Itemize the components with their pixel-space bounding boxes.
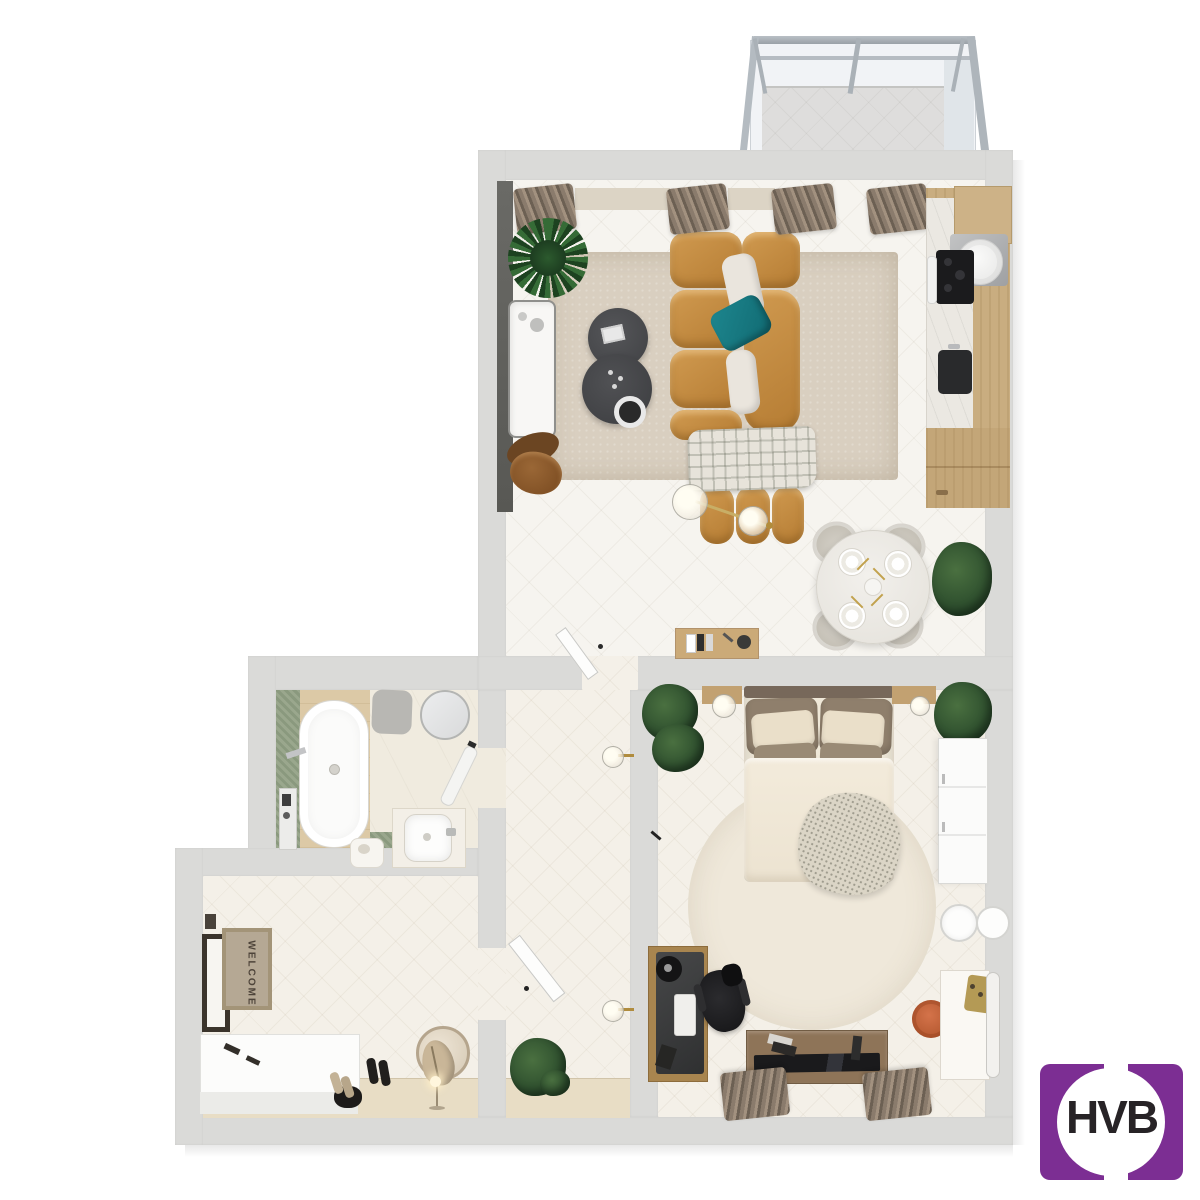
- sideboard-speaker-large: [530, 318, 544, 332]
- makeup-item-1: [970, 984, 975, 989]
- sofa-cushion-bottom-3: [772, 486, 804, 544]
- window-rail: [575, 188, 670, 210]
- cabinet-seam: [926, 466, 1010, 468]
- console-book-3: [706, 634, 713, 651]
- console-book-2: [697, 634, 704, 651]
- table-dot-2: [618, 376, 623, 381]
- building-shadow-bottom: [185, 1145, 1013, 1157]
- light-switch: [205, 914, 216, 929]
- desk-keyboard: [674, 994, 696, 1036]
- wall-bathroom-top: [248, 656, 478, 690]
- bathtub-drain: [329, 764, 340, 775]
- shower-control-2: [283, 812, 290, 819]
- bathroom-sink-faucet: [446, 828, 456, 836]
- curtain-bedroom-left: [720, 1067, 791, 1122]
- living-door-handle: [598, 644, 603, 649]
- wall-sconce-2: [976, 906, 1010, 940]
- pendant-globe-1: [672, 484, 708, 520]
- console-book-1: [686, 634, 696, 653]
- bed-lamp-right: [910, 696, 930, 716]
- bathroom-mirror: [420, 690, 470, 740]
- welcome-mat-label: WELCOME: [246, 933, 257, 1015]
- table-cup: [614, 396, 646, 428]
- wall-sconce-1: [940, 904, 978, 942]
- floor-lamp-base: [429, 1106, 445, 1110]
- sink-drain: [423, 833, 431, 841]
- wardrobe-seam-1: [938, 786, 986, 788]
- cooktop-handle: [927, 256, 937, 304]
- sink-faucet: [948, 344, 960, 349]
- welcome-mat: WELCOME: [222, 928, 272, 1010]
- curtain-living-3: [771, 183, 837, 235]
- plate-4: [882, 600, 910, 628]
- pendant-globe-2: [738, 506, 768, 536]
- corridor-lamp-globe-1: [602, 746, 624, 768]
- wardrobe: [938, 738, 988, 884]
- doorway-corridor-entrance: [478, 948, 506, 1020]
- wardrobe-handle-1: [942, 774, 945, 784]
- balcony-mid-rail: [754, 56, 974, 60]
- living-plant-center: [530, 240, 566, 276]
- sofa-plaid-blanket: [687, 426, 817, 492]
- table-dot-1: [608, 370, 613, 375]
- kitchen-sink: [938, 350, 972, 394]
- burner-2: [955, 270, 965, 280]
- hvb-logo-label: HVB: [1040, 1090, 1183, 1144]
- makeup-item-2: [978, 992, 983, 997]
- wardrobe-seam-2: [938, 834, 986, 836]
- curtain-living-2: [666, 183, 730, 235]
- plate-2: [884, 550, 912, 578]
- building-shadow-right: [1013, 160, 1025, 1145]
- sideboard-speaker-small: [518, 312, 527, 321]
- wall-living-top: [478, 150, 1013, 180]
- balcony-parapet-panel: [762, 86, 944, 152]
- curtain-living-4: [866, 183, 930, 235]
- table-centerpiece: [864, 578, 882, 596]
- cabinet-handle: [936, 490, 948, 495]
- coffee-machine-dot: [664, 964, 672, 972]
- wall-entrance-left: [175, 848, 203, 1145]
- wall-bathroom-left: [248, 656, 276, 876]
- console-vase: [737, 635, 751, 649]
- shower-control-1: [282, 794, 291, 806]
- wall-bottom: [175, 1117, 1013, 1145]
- stool-item: [358, 844, 370, 854]
- corridor-door-handle: [524, 986, 529, 991]
- burner-1: [944, 258, 952, 266]
- vanity-mirror-edge: [986, 972, 1000, 1078]
- wardrobe-handle-2: [942, 822, 945, 832]
- balcony-side-glass: [944, 58, 974, 150]
- wall-living-bottom: [478, 656, 1013, 690]
- bed-headboard: [744, 686, 894, 698]
- doorway-corridor-bathroom: [478, 748, 506, 808]
- floor-plan: WELCOME HVB: [0, 0, 1200, 1200]
- bed-lamp-left: [712, 694, 736, 718]
- balcony-top-beam: [754, 36, 974, 44]
- table-dot-3: [612, 384, 617, 389]
- floor-lamp-bulb: [430, 1076, 441, 1087]
- bath-mat: [371, 689, 413, 734]
- hvb-logo: HVB: [1040, 1064, 1183, 1180]
- corridor-lamp-globe-2: [602, 1000, 624, 1022]
- burner-3: [944, 284, 952, 292]
- pendant-knob: [766, 522, 773, 529]
- window-rail-2: [728, 188, 775, 210]
- kitchen-lower-cabinet: [926, 428, 1010, 508]
- curtain-bedroom-right: [862, 1067, 933, 1122]
